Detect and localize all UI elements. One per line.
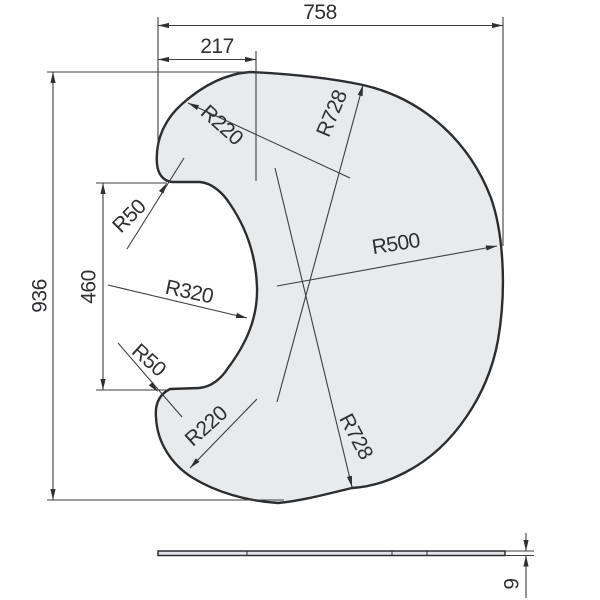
radius-r320-label: R320: [163, 276, 215, 309]
technical-drawing: 758 217 936 460 R220 R728 R500: [0, 0, 600, 600]
dim-thickness-9-label: 9: [501, 578, 524, 589]
dim-offset-217: 217: [158, 35, 256, 62]
radius-r50-bottom-label: R50: [127, 339, 170, 381]
side-view-profile: [158, 551, 505, 556]
dim-offset-217-label: 217: [200, 35, 234, 58]
dim-notch-460-label: 460: [78, 270, 101, 304]
technical-drawing-canvas: 758 217 936 460 R220 R728 R500: [0, 0, 600, 600]
radius-r50-top-label: R50: [108, 195, 150, 237]
dim-height-936: 936: [29, 72, 56, 500]
dim-height-936-label: 936: [29, 279, 52, 313]
dim-thickness-9: 9: [501, 533, 534, 598]
dim-width-758: 758: [158, 1, 503, 28]
dim-notch-460: 460: [78, 183, 106, 390]
dim-width-758-label: 758: [303, 1, 337, 24]
radius-r320: R320: [108, 276, 248, 321]
radius-r50-bottom: R50: [118, 339, 182, 417]
